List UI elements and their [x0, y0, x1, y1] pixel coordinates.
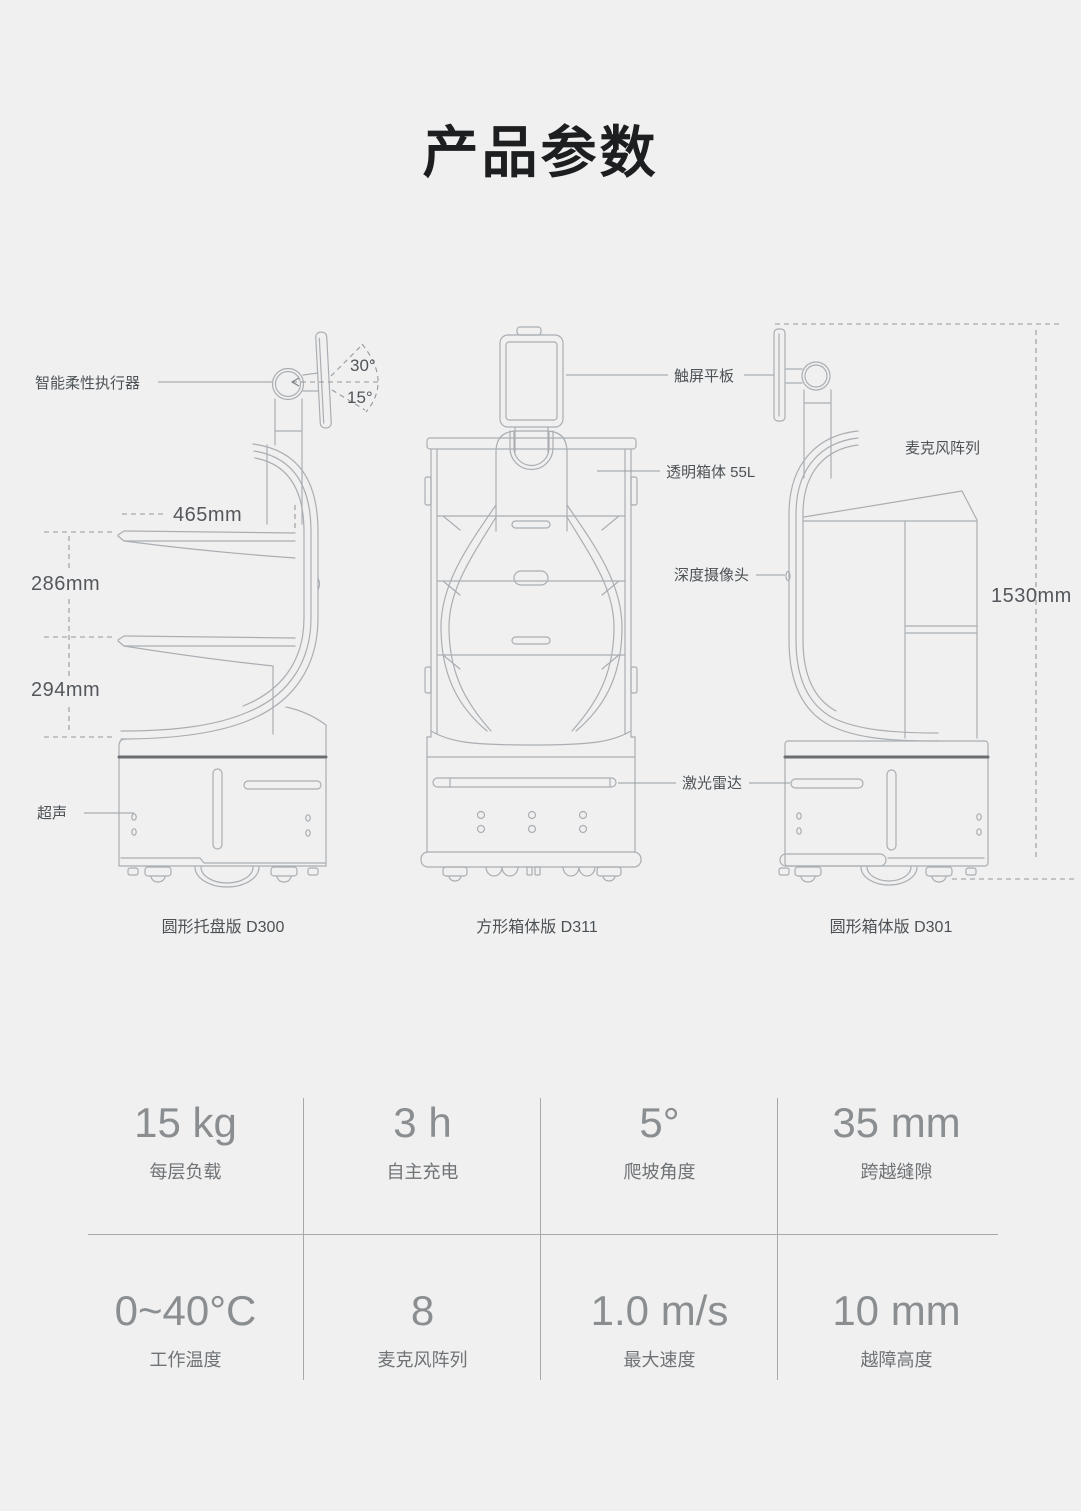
spec-cell-climb-angle: 5° 爬坡角度 [541, 1098, 778, 1234]
spec-row: 15 kg 每层负载 3 h 自主充电 5° 爬坡角度 35 mm 跨越缝隙 [67, 1098, 1015, 1234]
spec-label: 跨越缝隙 [861, 1158, 933, 1184]
angle-down-label: 15° [347, 388, 373, 408]
spec-value: 1.0 m/s [591, 1288, 729, 1334]
spec-cell-charging: 3 h 自主充电 [304, 1098, 541, 1234]
dim-total-height: 1530mm [991, 584, 1072, 608]
spec-cell-mic-array: 8 麦克风阵列 [304, 1234, 541, 1380]
dimension-lines [44, 324, 1074, 879]
spec-label: 爬坡角度 [624, 1158, 696, 1184]
caption-d301: 圆形箱体版 D301 [781, 913, 1001, 937]
spec-cell-obstacle-height: 10 mm 越障高度 [778, 1234, 1015, 1380]
callout-actuator: 智能柔性执行器 [35, 375, 140, 393]
spec-value: 5° [639, 1100, 679, 1146]
caption-d311: 方形箱体版 D311 [427, 913, 647, 937]
dim-gap-lower: 294mm [28, 677, 103, 703]
dim-gap-upper: 286mm [28, 571, 103, 597]
spec-grid: 15 kg 每层负载 3 h 自主充电 5° 爬坡角度 35 mm 跨越缝隙 0… [67, 1098, 1015, 1380]
robot-d301-drawing [774, 329, 988, 885]
spec-value: 15 kg [134, 1100, 237, 1146]
robot-d311-drawing [421, 327, 641, 881]
callout-mic-array: 麦克风阵列 [905, 440, 980, 458]
spec-label: 麦克风阵列 [378, 1346, 468, 1372]
callout-lidar: 激光雷达 [682, 775, 742, 793]
spec-label: 越障高度 [861, 1346, 933, 1372]
spec-value: 0~40°C [115, 1288, 257, 1334]
callout-transparent-box: 透明箱体 55L [666, 464, 755, 482]
spec-value: 3 h [393, 1100, 451, 1146]
caption-d300: 圆形托盘版 D300 [113, 913, 333, 937]
robot-d300-drawing [118, 332, 332, 887]
spec-cell-gap-crossing: 35 mm 跨越缝隙 [778, 1098, 1015, 1234]
spec-label: 工作温度 [150, 1346, 222, 1372]
spec-cell-max-speed: 1.0 m/s 最大速度 [541, 1234, 778, 1380]
spec-label: 自主充电 [387, 1158, 459, 1184]
spec-label: 最大速度 [624, 1346, 696, 1372]
product-spec-page: 产品参数 [0, 0, 1081, 1511]
spec-value: 10 mm [832, 1288, 960, 1334]
dim-tray-width: 465mm [173, 503, 242, 527]
callout-ultrasonic: 超声 [37, 805, 67, 823]
callout-depth-camera: 深度摄像头 [674, 567, 749, 585]
spec-value: 8 [411, 1288, 434, 1334]
spec-row: 0~40°C 工作温度 8 麦克风阵列 1.0 m/s 最大速度 10 mm 越… [67, 1234, 1015, 1380]
angle-up-label: 30° [350, 356, 376, 376]
spec-cell-temperature: 0~40°C 工作温度 [67, 1234, 304, 1380]
spec-cell-load: 15 kg 每层负载 [67, 1098, 304, 1234]
spec-label: 每层负载 [150, 1158, 222, 1184]
callout-tablet: 触屏平板 [674, 368, 734, 386]
spec-value: 35 mm [832, 1100, 960, 1146]
